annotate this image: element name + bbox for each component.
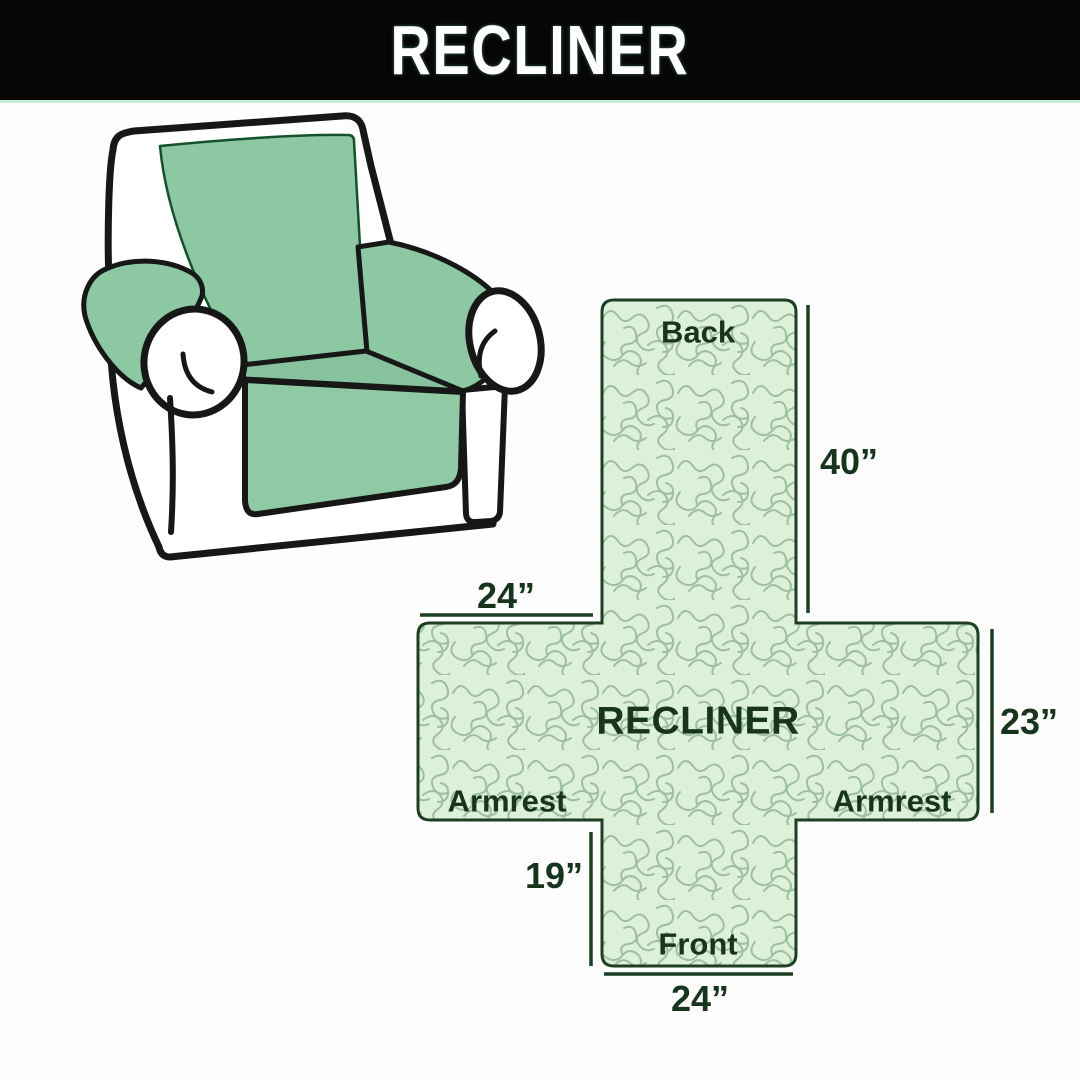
diagram-center-title: RECLINER [596, 702, 799, 741]
front-section-label: Front [658, 929, 737, 960]
back-section-label: Back [661, 317, 735, 348]
cover-flat-shape [418, 300, 978, 966]
front-width-dimension: 24” [671, 981, 729, 1017]
armrest-width-dimension: 24” [477, 578, 535, 614]
cover-pattern-diagram [0, 0, 1080, 1080]
front-height-dimension: 19” [525, 858, 583, 894]
infographic-page: RECLINER [0, 0, 1080, 1080]
armrest-left-label: Armrest [448, 786, 567, 817]
back-height-dimension: 40” [820, 444, 878, 480]
armrest-right-label: Armrest [833, 786, 952, 817]
side-height-dimension: 23” [1000, 704, 1058, 740]
